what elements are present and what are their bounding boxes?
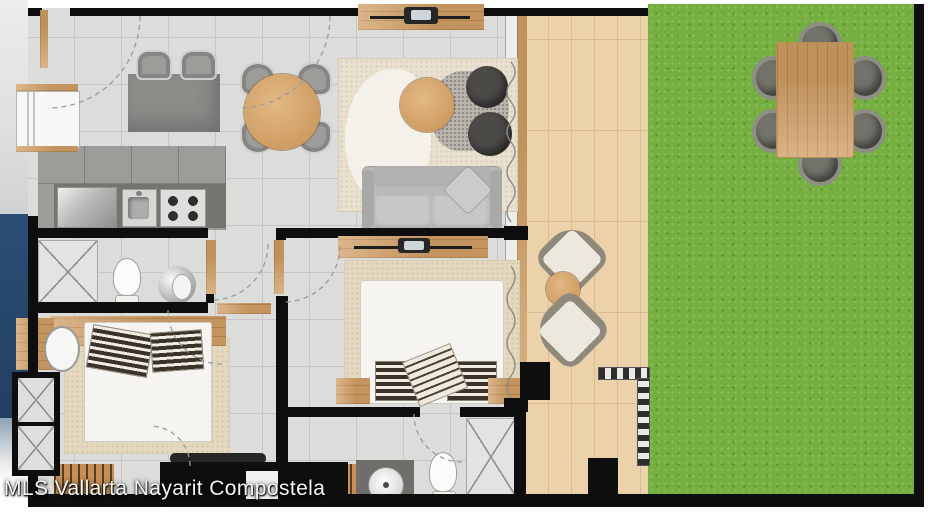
annotation-overlay (0, 0, 928, 514)
door-swing-arc (414, 414, 462, 462)
watermark-text: MLS Vallarta Nayarit Compostela (4, 477, 424, 501)
door-swing-arc (150, 426, 190, 466)
door-swing-arc (238, 16, 330, 108)
door-swing-arc (284, 246, 340, 302)
door-swing-arc (48, 16, 140, 108)
door-swing-arc (212, 244, 268, 300)
curtain-wave (507, 266, 515, 398)
door-swing-arc (168, 310, 222, 364)
floor-plan-canvas: MLS Vallarta Nayarit Compostela (0, 0, 928, 514)
curtain-wave (507, 62, 515, 222)
